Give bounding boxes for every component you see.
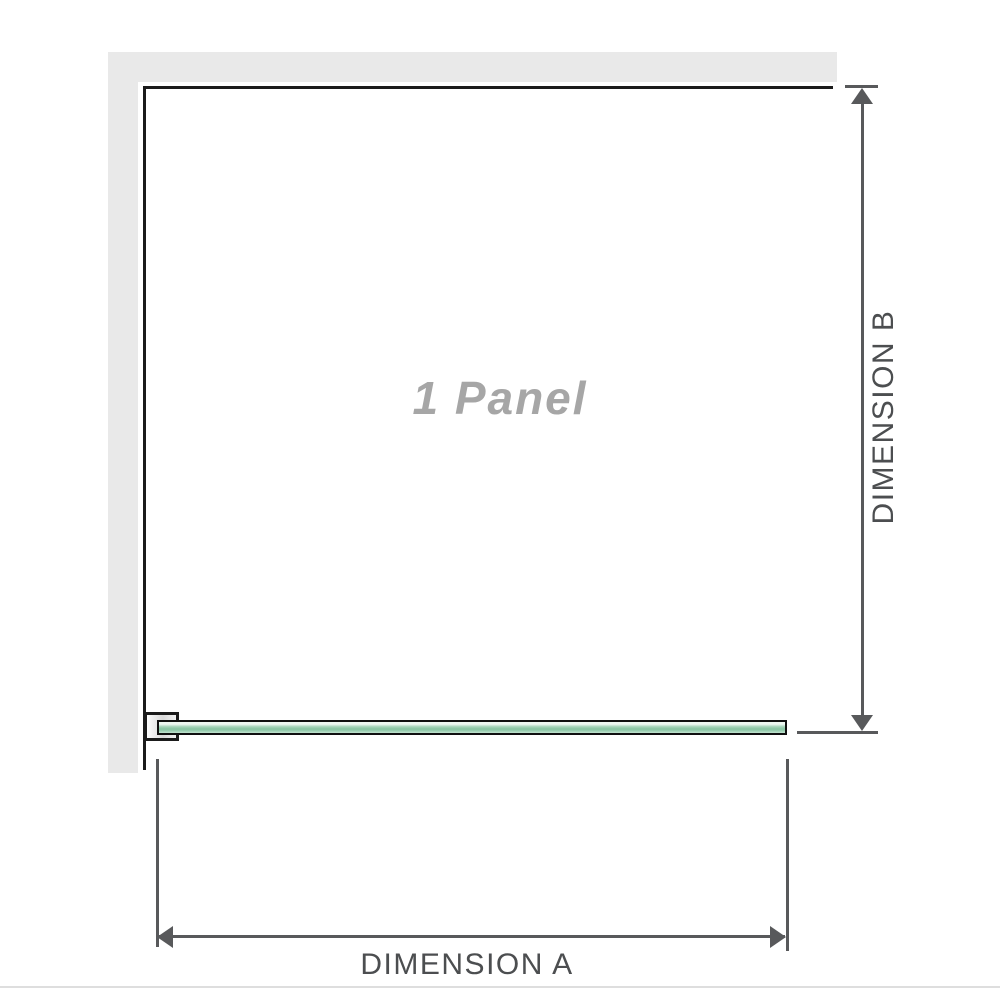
arrow-right-icon xyxy=(770,926,786,948)
glass-panel-bar xyxy=(157,720,787,735)
dimension-a-extension-left xyxy=(156,759,159,947)
dimension-b-label: DIMENSION B xyxy=(867,267,901,567)
dimension-b-line xyxy=(861,100,864,717)
arrow-down-icon xyxy=(851,715,873,731)
arrow-left-icon xyxy=(157,926,173,948)
dimension-a-extension-right xyxy=(786,759,789,951)
panel-edge-left xyxy=(143,86,146,770)
panel-edge-top xyxy=(143,86,833,89)
dimension-b-tick-bottom xyxy=(797,731,878,734)
bottom-divider xyxy=(0,986,1000,988)
dimension-a-line xyxy=(159,935,785,938)
panel-dimension-diagram: 1 Panel DIMENSION B DIMENSION A xyxy=(0,0,1000,1000)
wall-top xyxy=(108,52,837,82)
dimension-a-label: DIMENSION A xyxy=(317,948,617,982)
arrow-up-icon xyxy=(851,88,873,104)
wall-left xyxy=(108,52,138,773)
panel-label: 1 Panel xyxy=(330,368,670,428)
